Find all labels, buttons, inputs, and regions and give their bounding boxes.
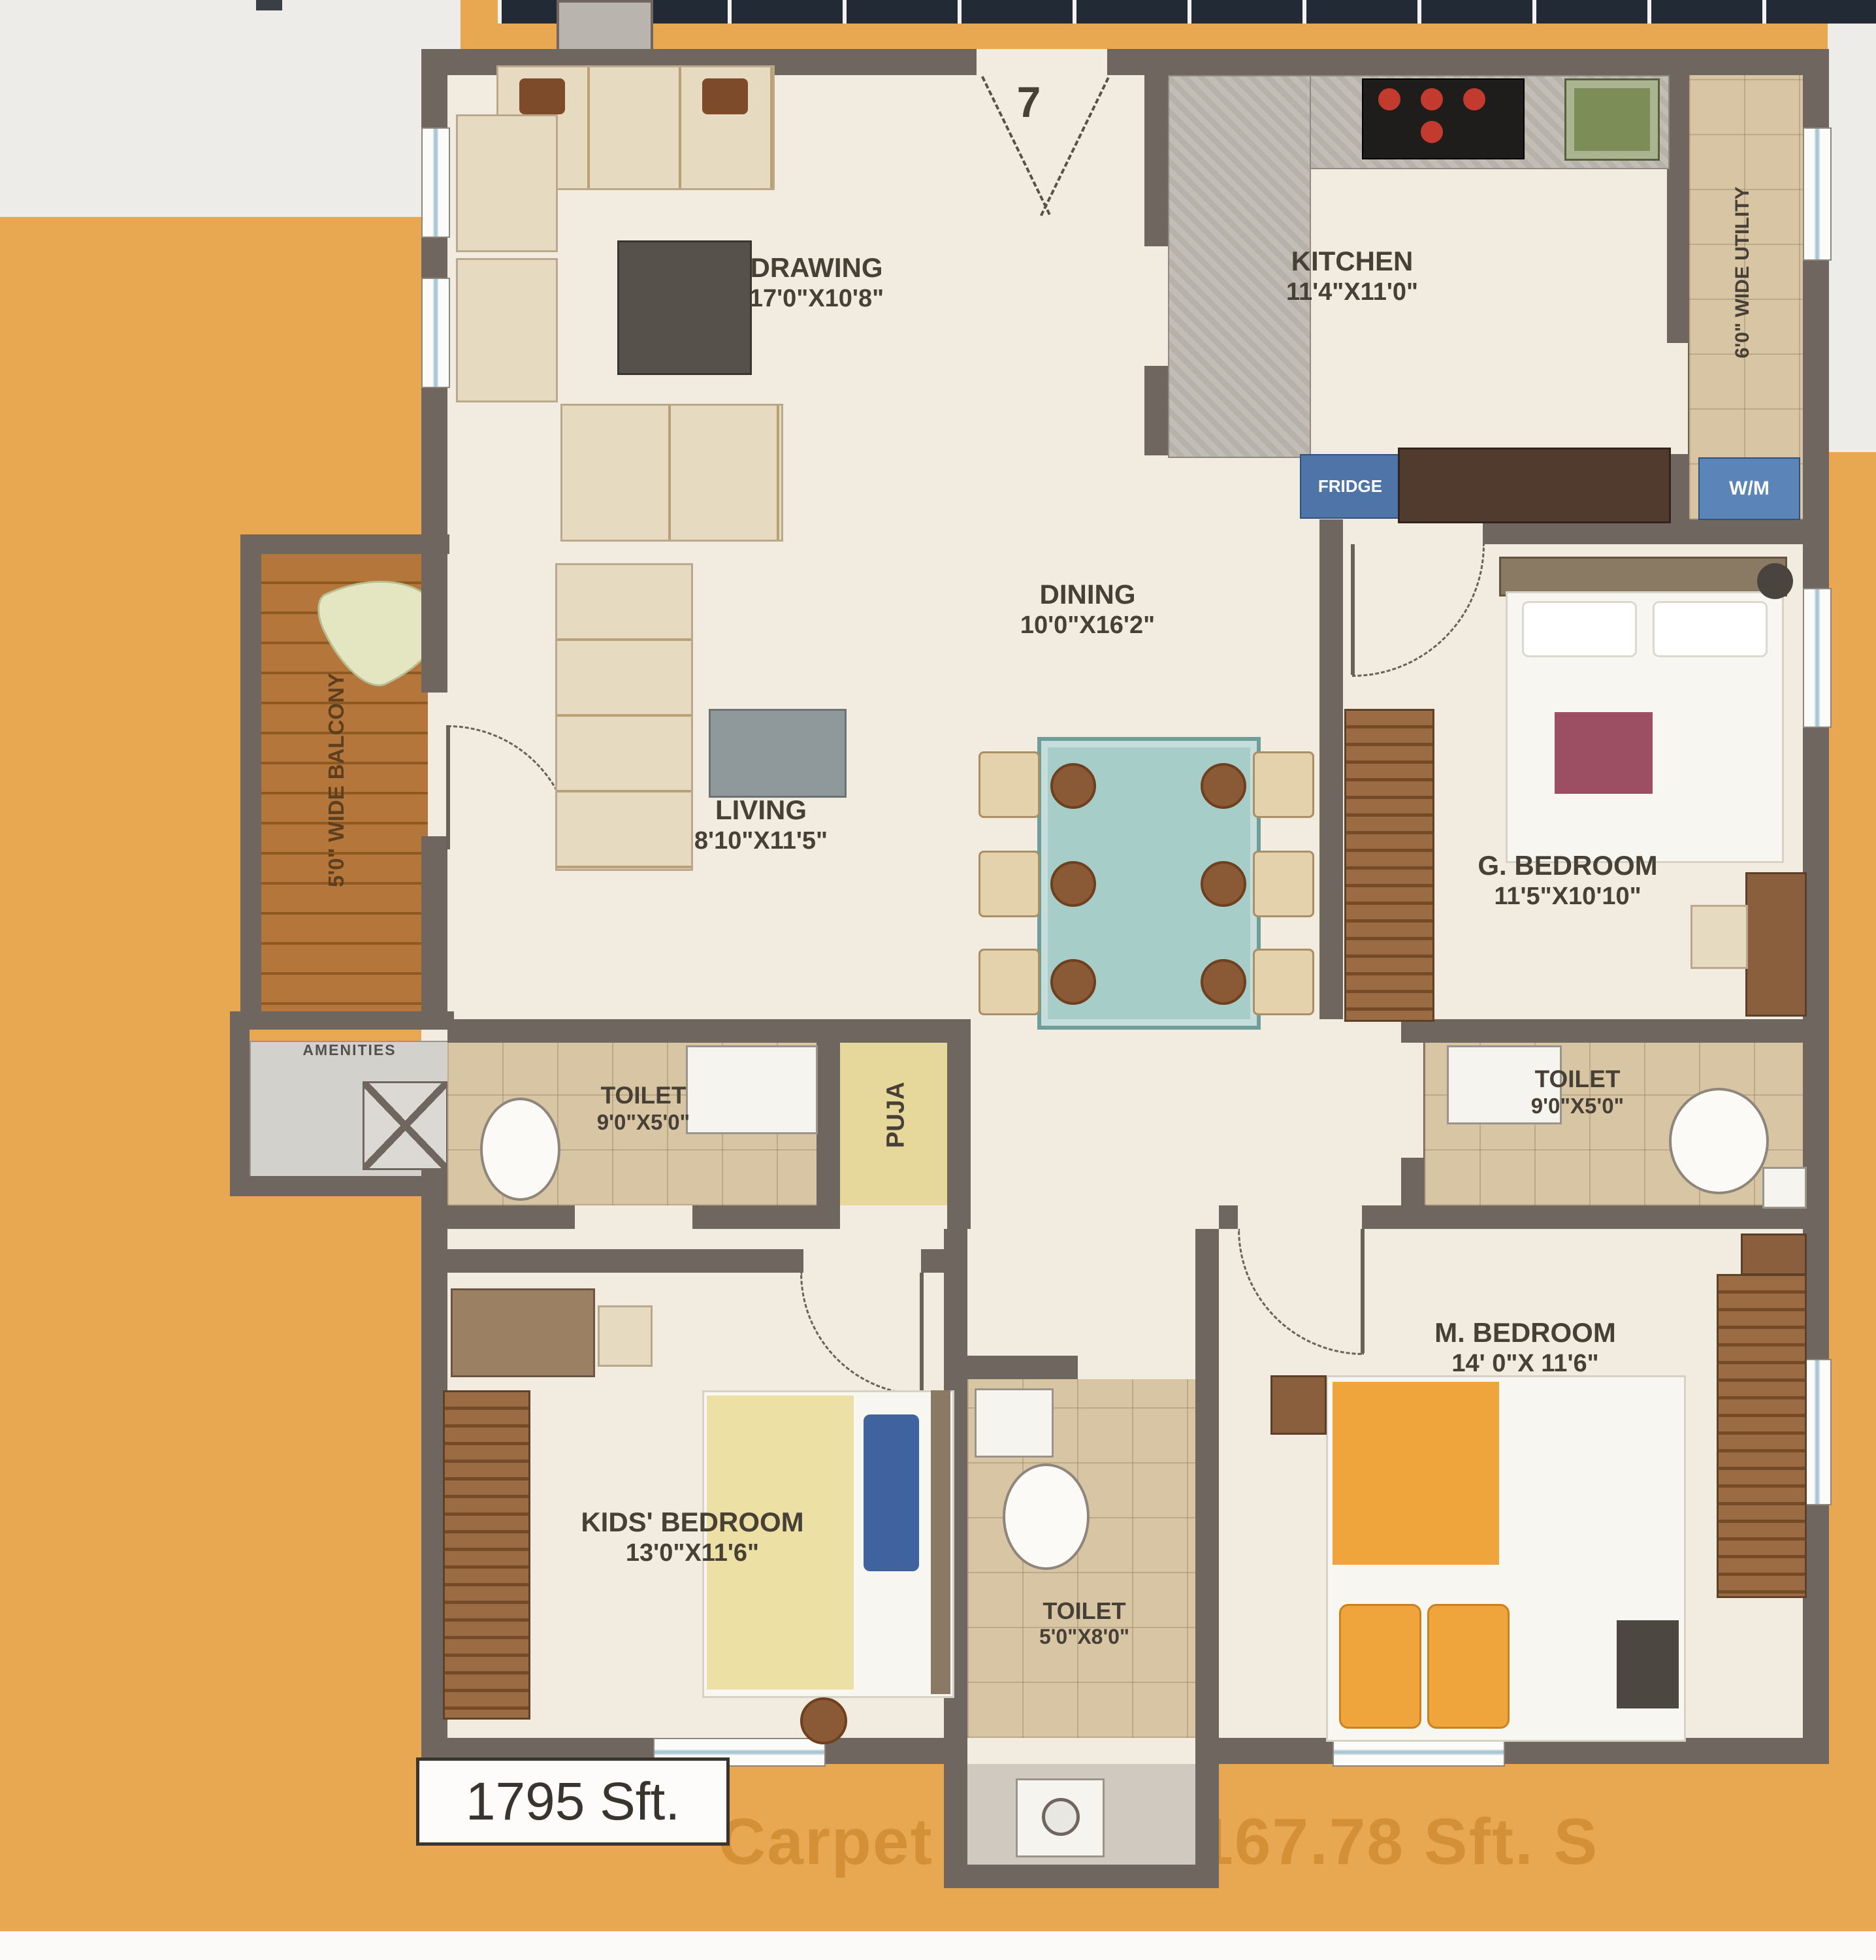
label-utility: 6'0" WIDE UTILITY bbox=[1732, 76, 1754, 468]
fridge: FRIDGE bbox=[1300, 454, 1400, 519]
room-dims: 17'0"X10'8" bbox=[679, 284, 954, 314]
label-drawing: DRAWING 17'0"X10'8" bbox=[679, 252, 954, 313]
corridor-tile-fragment bbox=[256, 0, 282, 10]
place-setting bbox=[1050, 763, 1096, 809]
label-amenities: AMENITIES bbox=[251, 1041, 447, 1059]
room-name: TOILET bbox=[1476, 1065, 1679, 1094]
wall-toiletleft-bottom-a bbox=[447, 1205, 575, 1229]
wall-kitchen-left-a bbox=[1144, 75, 1168, 246]
dining-chair bbox=[1253, 751, 1314, 818]
floor-plan: Carpet Area : 1167.78 Sft. S bbox=[0, 0, 1876, 1960]
place-setting bbox=[1201, 959, 1246, 1005]
balcony-door-leaf bbox=[446, 725, 450, 849]
wall-toiletleft-top bbox=[447, 1019, 840, 1043]
place-setting bbox=[1201, 861, 1246, 907]
armchair-1 bbox=[456, 114, 558, 252]
kitchen-cabinet bbox=[1398, 448, 1671, 523]
room-dims: 8'10"X11'5" bbox=[653, 826, 869, 856]
wall-kids-top-b bbox=[921, 1249, 967, 1273]
wall-toiletright-top bbox=[1401, 1019, 1803, 1043]
wall-toiletleft-right bbox=[817, 1019, 840, 1229]
wall-kitchen-utility-a bbox=[1667, 75, 1689, 343]
dining-chair bbox=[978, 949, 1040, 1015]
room-name: DINING bbox=[980, 578, 1195, 611]
wall-gbed-left bbox=[1319, 519, 1343, 1019]
wall-toiletbottom-right bbox=[1195, 1229, 1219, 1888]
kitchen-sink bbox=[1564, 78, 1660, 161]
dining-chair bbox=[978, 751, 1040, 818]
wall-toiletright-left-a bbox=[1401, 1019, 1425, 1043]
m-bed-blanket bbox=[1333, 1382, 1499, 1565]
sofa-pillow-2 bbox=[702, 78, 748, 114]
kids-bed-pillow bbox=[864, 1414, 919, 1571]
label-toilet-right: TOILET 9'0"X5'0" bbox=[1476, 1065, 1679, 1119]
window-drawing-1 bbox=[421, 127, 450, 238]
room-dims: 9'0"X5'0" bbox=[1476, 1094, 1679, 1119]
wall-top-b bbox=[1107, 49, 1829, 75]
toilet-bottom-wc bbox=[1003, 1463, 1090, 1570]
wall-left-mid bbox=[421, 836, 447, 1022]
label-living: LIVING 8'10"X11'5" bbox=[653, 794, 869, 855]
wall-toiletright-left-b bbox=[1401, 1158, 1425, 1229]
label-balcony: 5'0" WIDE BALCONY bbox=[324, 571, 349, 989]
label-toilet-bottom: TOILET 5'0"X8'0" bbox=[986, 1597, 1182, 1650]
place-setting bbox=[1050, 861, 1096, 907]
room-name: G. BEDROOM bbox=[1424, 849, 1711, 882]
floor-drain bbox=[363, 1081, 448, 1170]
area-badge-text: 1795 Sft. bbox=[466, 1771, 680, 1833]
stove-burner bbox=[1421, 121, 1443, 143]
kids-bed-headboard bbox=[931, 1390, 950, 1694]
wall-toiletleft-bottom-b bbox=[692, 1205, 840, 1229]
wall-mbed-top-a bbox=[1219, 1205, 1238, 1229]
bg-top-right-white bbox=[1828, 0, 1876, 452]
label-m-bedroom: M. BEDROOM 14' 0"X 11'6" bbox=[1372, 1316, 1679, 1378]
sofa-two-seater bbox=[560, 404, 783, 542]
room-dims: 13'0"X11'6" bbox=[542, 1539, 843, 1568]
balcony-wall-top bbox=[240, 534, 449, 554]
g-bed-pillow bbox=[1522, 601, 1637, 657]
room-name: KITCHEN bbox=[1241, 245, 1463, 278]
g-bed-pillow bbox=[1653, 601, 1768, 657]
wall-toiletbottom-top bbox=[967, 1356, 1078, 1379]
amenities-wall-bottom bbox=[230, 1176, 452, 1196]
room-dims: 9'0"X5'0" bbox=[542, 1110, 745, 1135]
label-toilet-left: TOILET 9'0"X5'0" bbox=[542, 1081, 745, 1135]
window-m-bedroom-south bbox=[1333, 1738, 1505, 1767]
m-bedroom-door-leaf bbox=[1361, 1229, 1365, 1353]
room-dims: 5'0"X8'0" bbox=[986, 1625, 1182, 1650]
amenities-wall-left bbox=[230, 1022, 250, 1196]
g-bedside-lamp bbox=[1757, 563, 1793, 599]
wall-kids-top-a bbox=[447, 1249, 803, 1273]
room-dims: 11'4"X11'0" bbox=[1241, 278, 1463, 307]
room-dims: 10'0"X16'2" bbox=[980, 611, 1195, 640]
watermark: Carpet Area : 1167.78 Sft. S bbox=[719, 1805, 1876, 1889]
kids-desk bbox=[451, 1288, 595, 1377]
window-m-bedroom bbox=[1803, 1359, 1832, 1505]
corridor-tile-strip bbox=[498, 0, 1876, 24]
bg-bottom-white-strip bbox=[0, 1931, 1876, 1960]
g-bedroom-wardrobe bbox=[1344, 709, 1434, 1022]
m-bed-pillow bbox=[1427, 1604, 1510, 1729]
label-kids-bedroom: KIDS' BEDROOM 13'0"X11'6" bbox=[542, 1506, 843, 1567]
wall-toiletbottom-bottom bbox=[944, 1865, 1219, 1888]
label-g-bedroom: G. BEDROOM 11'5"X10'10" bbox=[1424, 849, 1711, 911]
dining-chair bbox=[1253, 949, 1314, 1015]
wall-toiletright-bottom bbox=[1425, 1205, 1803, 1229]
toilet-right-sink bbox=[1762, 1167, 1807, 1209]
g-bed-blanket bbox=[1555, 712, 1653, 794]
balcony-wall-bottom bbox=[230, 1011, 454, 1030]
room-dims: 11'5"X10'10" bbox=[1424, 882, 1711, 911]
dining-chair bbox=[978, 851, 1040, 917]
room-dims: 14' 0"X 11'6" bbox=[1372, 1349, 1679, 1379]
stove-burner bbox=[1463, 88, 1485, 110]
room-name: TOILET bbox=[986, 1597, 1182, 1625]
label-puja: PUJA bbox=[882, 1030, 911, 1200]
window-g-bedroom bbox=[1803, 588, 1832, 728]
wall-kitchen-left-b bbox=[1144, 366, 1168, 455]
stove-burner bbox=[1421, 88, 1443, 110]
wall-mbed-top-b bbox=[1362, 1205, 1401, 1229]
bg-top-left-white bbox=[0, 0, 461, 217]
g-bed-headboard bbox=[1499, 557, 1787, 596]
place-setting bbox=[1050, 959, 1096, 1005]
stove-burner bbox=[1378, 88, 1400, 110]
room-name: DRAWING bbox=[679, 252, 954, 284]
m-bedroom-bench bbox=[1741, 1233, 1807, 1275]
balcony-wall-left bbox=[240, 534, 261, 1011]
kids-wardrobe bbox=[443, 1390, 530, 1720]
label-kitchen: KITCHEN 11'4"X11'0" bbox=[1241, 245, 1463, 306]
wall-right bbox=[1803, 49, 1829, 1764]
place-setting bbox=[1201, 763, 1246, 809]
label-dining: DINING 10'0"X16'2" bbox=[980, 578, 1195, 640]
kids-stool bbox=[800, 1697, 847, 1744]
kids-chair bbox=[598, 1305, 653, 1367]
g-bedroom-desk bbox=[1745, 872, 1807, 1017]
g-bedroom-door-leaf bbox=[1351, 544, 1355, 675]
room-name: TOILET bbox=[542, 1081, 745, 1110]
coffee-table bbox=[709, 709, 847, 798]
room-name: LIVING bbox=[653, 794, 869, 826]
wall-puja-right bbox=[947, 1019, 971, 1229]
m-bed-throw bbox=[1617, 1620, 1679, 1708]
wash-basin-bowl bbox=[1042, 1798, 1080, 1836]
toilet-bottom-shelf bbox=[975, 1388, 1054, 1458]
toilet-right-wc bbox=[1669, 1088, 1769, 1194]
g-bedroom-chair bbox=[1690, 905, 1748, 969]
window-drawing-2 bbox=[421, 278, 450, 388]
m-bed-pillow bbox=[1339, 1604, 1421, 1729]
sofa-pillow-1 bbox=[519, 78, 565, 114]
wall-bottom-b bbox=[1219, 1738, 1829, 1764]
m-bedside-table bbox=[1270, 1375, 1327, 1435]
area-badge: 1795 Sft. bbox=[416, 1757, 730, 1846]
armchair-2 bbox=[456, 258, 558, 402]
dining-chair bbox=[1253, 851, 1314, 917]
room-name: M. BEDROOM bbox=[1372, 1316, 1679, 1349]
kids-bedroom-door-leaf bbox=[920, 1273, 924, 1394]
room-name: KIDS' BEDROOM bbox=[542, 1506, 843, 1539]
m-bedroom-wardrobe bbox=[1717, 1274, 1807, 1598]
window-utility bbox=[1803, 127, 1832, 261]
